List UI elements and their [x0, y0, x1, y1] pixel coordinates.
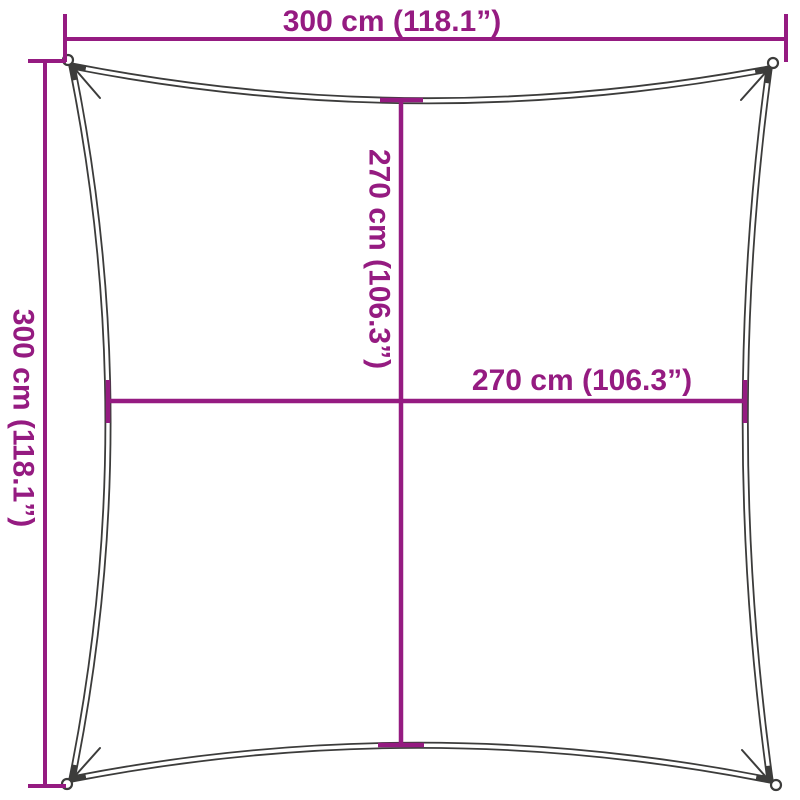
sail-hem-gap — [72, 66, 770, 780]
corner-ring-bottom-right — [771, 780, 781, 790]
sail-corner-rings — [62, 55, 781, 790]
dimension-lines — [28, 14, 786, 786]
left-dimension-label: 300 cm (118.1”) — [7, 309, 40, 527]
sail-outline — [72, 66, 770, 780]
sail-corner-seams — [75, 69, 766, 777]
sail-right-edge-gap — [745, 69, 770, 780]
sail-left-edge-gap — [72, 66, 108, 779]
sail-bottom-edge-gap — [72, 745, 770, 780]
inner-horizontal-dimension-label: 270 cm (106.3”) — [472, 364, 692, 397]
diagram-canvas: 300 cm (118.1”) 300 cm (118.1”) 270 cm (… — [0, 0, 800, 800]
shade-sail-dimension-diagram: 300 cm (118.1”) 300 cm (118.1”) 270 cm (… — [0, 0, 800, 800]
inner-vertical-dimension-label: 270 cm (106.3”) — [363, 149, 396, 369]
top-dimension-label: 300 cm (118.1”) — [283, 5, 501, 38]
corner-ring-top-right — [768, 58, 778, 68]
